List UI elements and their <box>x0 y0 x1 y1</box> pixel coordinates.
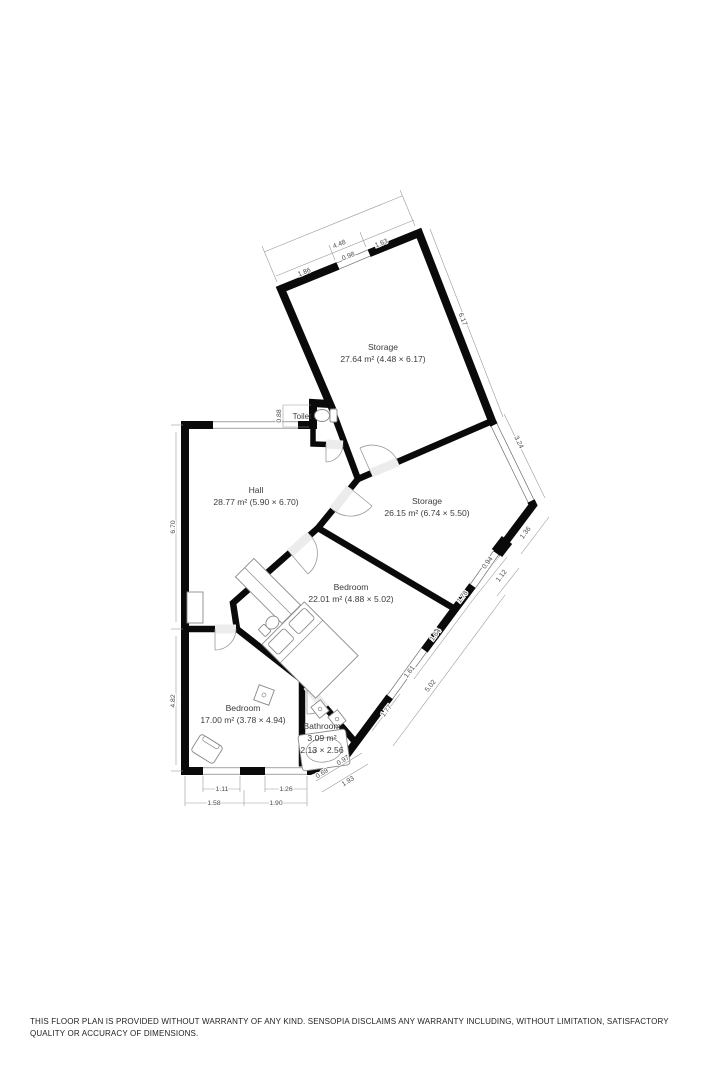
dim-bedroom-side: 4.82 <box>170 694 177 707</box>
dim-hall-side: 6.70 <box>170 520 177 533</box>
dim-storage-window: 3.24 <box>512 435 524 450</box>
room-label-bathroom-area1: 3.09 m² <box>307 733 336 743</box>
room-label-bedroom-large-area: 22.01 m² (4.88 × 5.02) <box>308 594 393 604</box>
hall-cabinet <box>187 592 203 623</box>
armchair <box>191 734 224 765</box>
dim-bottom-win2: 1.26 <box>279 786 292 793</box>
floor-plan-svg: 4.48 1.86 0.98 1.63 6.17 3.24 1.36 0.94 … <box>0 0 711 1067</box>
dim-right-edge: 1.36 <box>519 526 533 541</box>
room-label-toilet: Toilet <box>293 412 312 421</box>
room-label-storage-top-area: 27.64 m² (4.48 × 6.17) <box>340 354 425 364</box>
dim-side-total: 5.02 <box>424 679 438 694</box>
windows <box>203 250 534 774</box>
dim-side-112: 1.12 <box>495 569 509 584</box>
dim-top-overall: 4.48 <box>332 239 347 251</box>
dim-bottom-seg1: 1.58 <box>207 800 220 807</box>
toilet-fixture <box>315 409 338 422</box>
room-label-hall-name: Hall <box>249 485 264 495</box>
dim-bath-total: 1.93 <box>341 775 356 788</box>
room-label-storage-mid-area: 26.15 m² (6.74 × 5.50) <box>384 508 469 518</box>
dim-bottom-win1: 1.11 <box>216 786 229 793</box>
room-label-bathroom-name: Bathroom <box>303 721 340 731</box>
room-label-bedroom-small-area: 17.00 m² (3.78 × 4.94) <box>200 715 285 725</box>
room-label-hall-area: 28.77 m² (5.90 × 6.70) <box>213 497 298 507</box>
room-label-bedroom-large-name: Bedroom <box>334 582 369 592</box>
dim-bottom-seg2: 1.90 <box>269 800 282 807</box>
room-label-storage-top-name: Storage <box>368 342 398 352</box>
room-label-bathroom-area2: 2.13 × 2.56 <box>300 745 343 755</box>
disclaimer-text: THIS FLOOR PLAN IS PROVIDED WITHOUT WARR… <box>30 1016 685 1041</box>
room-label-storage-mid-name: Storage <box>412 496 442 506</box>
room-label-bedroom-small-name: Bedroom <box>226 703 261 713</box>
dim-toilet-height: 0.88 <box>276 409 283 422</box>
floor-plan-page: 4.48 1.86 0.98 1.63 6.17 3.24 1.36 0.94 … <box>0 0 711 1067</box>
